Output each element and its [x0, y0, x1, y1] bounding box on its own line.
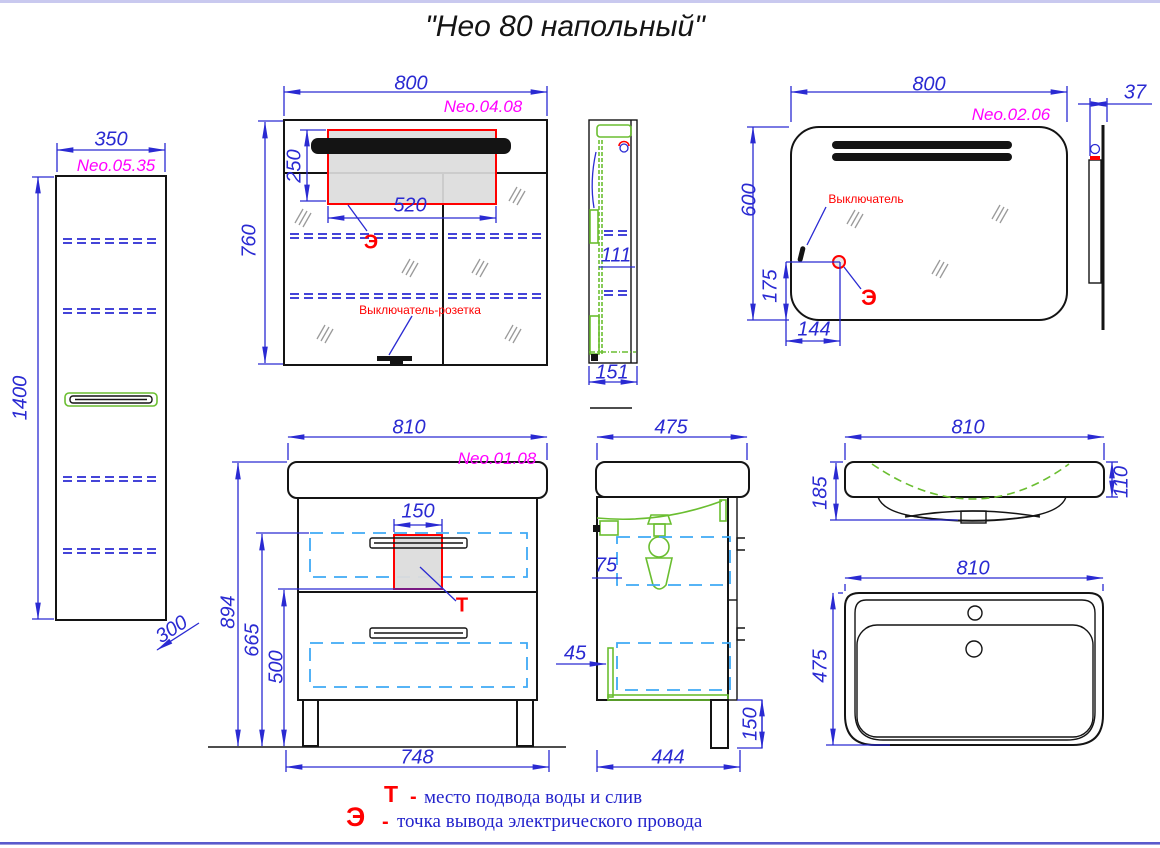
line-art: .k{stroke:#141414;stroke-width:2;fill:no…: [0, 0, 1160, 848]
light-bar: [311, 138, 511, 154]
dim-mc-side-inner: 111: [601, 245, 631, 268]
dim-mirror-depth: 37: [1124, 82, 1146, 105]
legend-e-dash: -: [382, 811, 389, 834]
mirror-cabinet-model: Neo.04.08: [444, 97, 522, 117]
electric-marker: Э: [861, 285, 877, 311]
dim-mc-side-depth: 151: [595, 362, 628, 385]
legend-t-text: место подвода воды и слив: [424, 787, 642, 809]
dim-tall-width: 350: [94, 129, 127, 152]
switch-socket: [377, 356, 412, 361]
dim-sink-height: 185: [810, 476, 833, 509]
dim-vanity-gap: 75: [595, 555, 617, 578]
page-title: "Нео 80 напольный": [425, 10, 705, 44]
dim-sink-top-depth: 475: [810, 649, 833, 682]
dim-sink-width: 810: [951, 417, 984, 440]
dim-e-offset-y: 175: [760, 269, 783, 302]
overflow-hole: [966, 641, 982, 657]
dim-sink-edge-height: 110: [1111, 466, 1134, 498]
switch-socket-label: Выключатель-розетка: [359, 303, 481, 317]
dim-mirror-width: 800: [912, 74, 945, 97]
faucet-hole: [968, 606, 982, 620]
mirror-light-strip: [832, 153, 1012, 161]
mirror-light-strip: [832, 141, 1012, 149]
legend-e-symbol: Э: [346, 802, 365, 833]
switch-label: Выключатель: [828, 192, 903, 206]
dim-zone-height: 250: [284, 149, 307, 182]
mirror-side-drawing: [1078, 98, 1152, 330]
sink-front-drawing: [830, 437, 1118, 523]
dim-sink-top-width: 810: [956, 558, 989, 581]
dim-vanity-offset: 45: [564, 643, 586, 666]
legend-t-symbol: Т: [384, 781, 398, 808]
top-border-strip: [0, 0, 1160, 3]
dim-zone-width: 520: [393, 195, 426, 218]
sink-top-drawing: [826, 578, 1103, 745]
dim-vanity-width: 810: [392, 417, 425, 440]
tall-cabinet-drawing: [32, 143, 199, 650]
mirror-model: Neo.02.06: [972, 105, 1050, 125]
dim-mirror-cabinet-height: 760: [239, 224, 262, 257]
vanity-drawing: [208, 437, 566, 772]
bottom-border-line: [0, 842, 1160, 845]
dim-vanity-height: 894: [218, 595, 241, 628]
dim-tall-height: 1400: [10, 376, 33, 421]
tall-cabinet-model: Neo.05.35: [77, 156, 155, 176]
dim-leg-height: 150: [740, 707, 763, 740]
dim-vanity-drawer2: 500: [266, 650, 289, 683]
dim-vanity-base-width: 748: [400, 747, 433, 770]
vanity-model: Neo.01.08: [458, 449, 536, 469]
dim-vanity-base-depth: 444: [651, 747, 684, 770]
legend-e-text: точка вывода электрического провода: [397, 811, 702, 833]
mirror-cabinet-drawing: [258, 86, 547, 365]
dim-vanity-zone-width: 150: [401, 501, 434, 524]
water-marker: Т: [456, 595, 468, 618]
drawing-sheet: .k{stroke:#141414;stroke-width:2;fill:no…: [0, 0, 1160, 848]
mirror-switch: [797, 246, 806, 263]
legend-t-dash: -: [410, 786, 417, 809]
dim-vanity-drawer1: 665: [242, 623, 265, 656]
dim-mirror-cabinet-width: 800: [394, 73, 427, 96]
dim-e-offset-x: 144: [797, 319, 830, 342]
electric-marker: Э: [364, 232, 378, 255]
dim-vanity-depth: 475: [654, 417, 687, 440]
mirror-drawing: [747, 86, 1067, 346]
vanity-side-drawing: [556, 437, 762, 772]
dim-mirror-height: 600: [739, 183, 762, 216]
